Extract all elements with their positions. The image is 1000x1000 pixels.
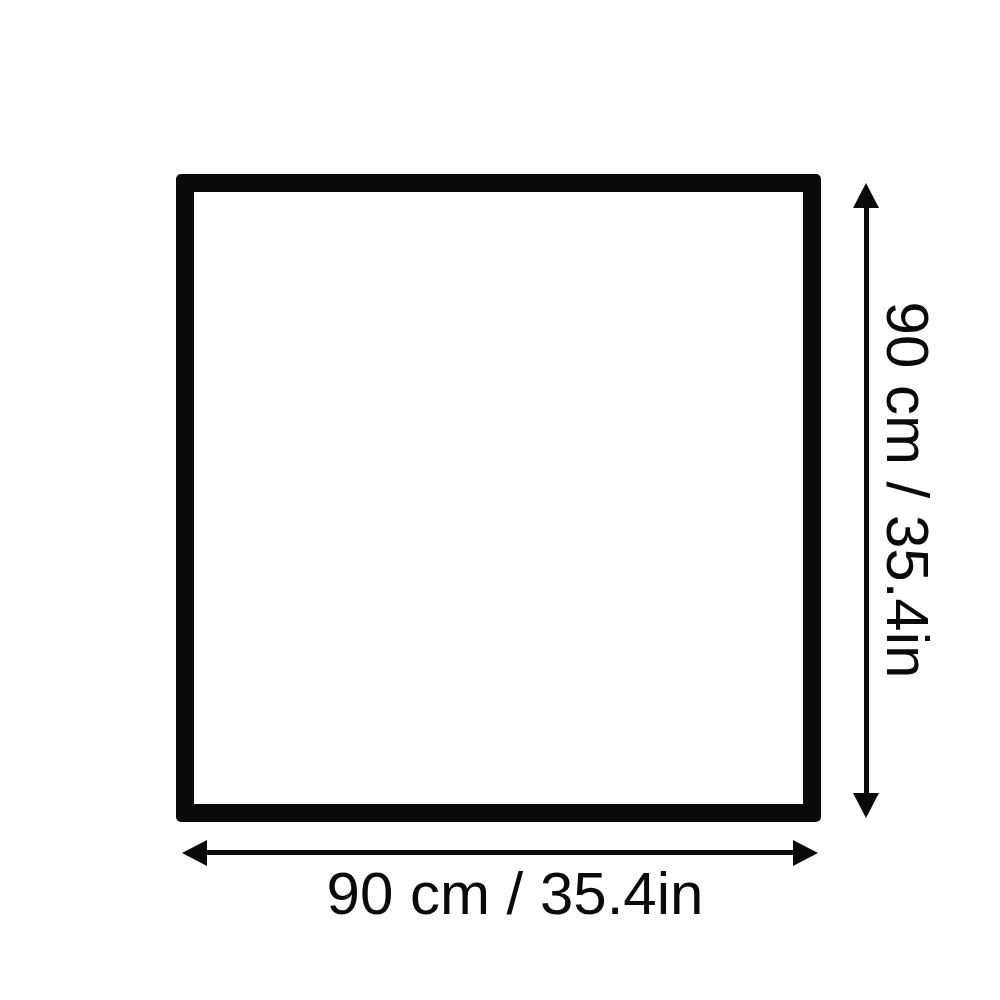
arrow-left-icon bbox=[182, 840, 207, 866]
arrow-up-icon bbox=[853, 183, 879, 208]
width-dimension-line bbox=[196, 850, 804, 855]
height-dimension-line bbox=[864, 195, 869, 807]
product-outline-square bbox=[176, 174, 821, 822]
width-dimension-label: 90 cm / 35.4in bbox=[327, 864, 704, 924]
dimension-diagram: 90 cm / 35.4in 90 cm / 35.4in bbox=[0, 0, 1000, 1000]
height-dimension-label: 90 cm / 35.4in bbox=[877, 302, 937, 679]
arrow-down-icon bbox=[853, 793, 879, 818]
arrow-right-icon bbox=[793, 840, 818, 866]
